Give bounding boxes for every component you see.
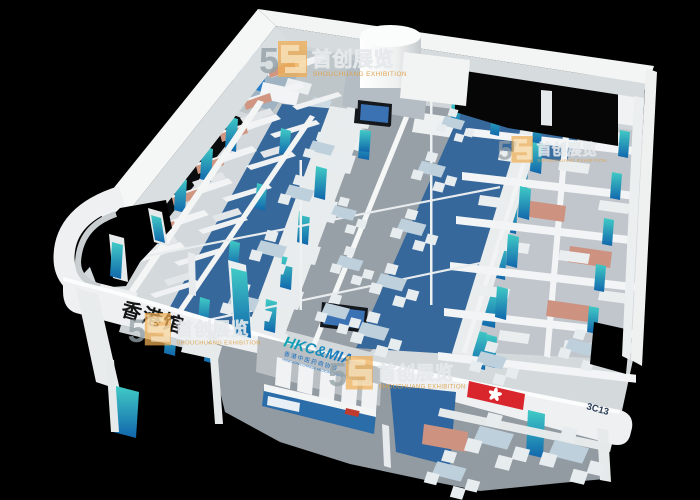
svg-text:5: 5 — [259, 40, 279, 81]
svg-text:SHOUCHUANG EXHIBITION: SHOUCHUANG EXHIBITION — [176, 341, 261, 347]
svg-text:首创展览: 首创展览 — [377, 362, 453, 383]
svg-text:5: 5 — [328, 357, 347, 394]
svg-text:首创展览: 首创展览 — [175, 319, 249, 340]
svg-text:SHOUCHUANG EXHIBITION: SHOUCHUANG EXHIBITION — [537, 158, 607, 164]
svg-text:SHOUCHUANG EXHIBITION: SHOUCHUANG EXHIBITION — [378, 385, 465, 391]
svg-text:SHOUCHUANG EXHIBITION: SHOUCHUANG EXHIBITION — [313, 71, 407, 78]
svg-text:首创展览: 首创展览 — [312, 47, 394, 71]
svg-text:5: 5 — [497, 136, 512, 166]
svg-text:5: 5 — [128, 313, 146, 349]
svg-text:首创展览: 首创展览 — [537, 141, 598, 159]
